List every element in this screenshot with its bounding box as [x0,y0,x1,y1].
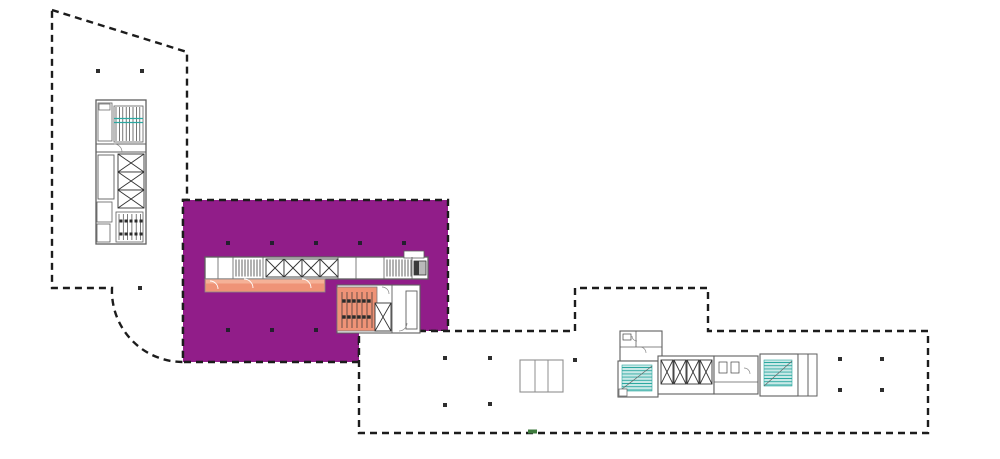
elevator-cell [320,259,338,277]
service-shaft-dark [414,261,419,275]
elevator-cell [302,259,320,277]
elevator-cell [700,360,712,384]
shaft-triplet [520,360,563,392]
floor-plan-page [0,0,1000,459]
stair-shaft [375,303,391,331]
shaft-column [808,354,817,396]
shaft-column [798,354,808,396]
elevator-cell [118,190,144,208]
elevator-cell [284,259,302,277]
elevator-cell [118,172,144,190]
elevator-cell [687,360,699,384]
elevator-cell [266,259,284,277]
elevator-cell [661,360,673,384]
elevator-cell [118,154,144,172]
elevator-cell [674,360,686,384]
green-tick [528,430,537,434]
east-core-rooms [620,331,662,361]
east-core-closet [619,389,627,396]
central-core-tab [404,251,424,258]
floor-plan [0,0,1000,459]
core-corridor [406,291,417,329]
